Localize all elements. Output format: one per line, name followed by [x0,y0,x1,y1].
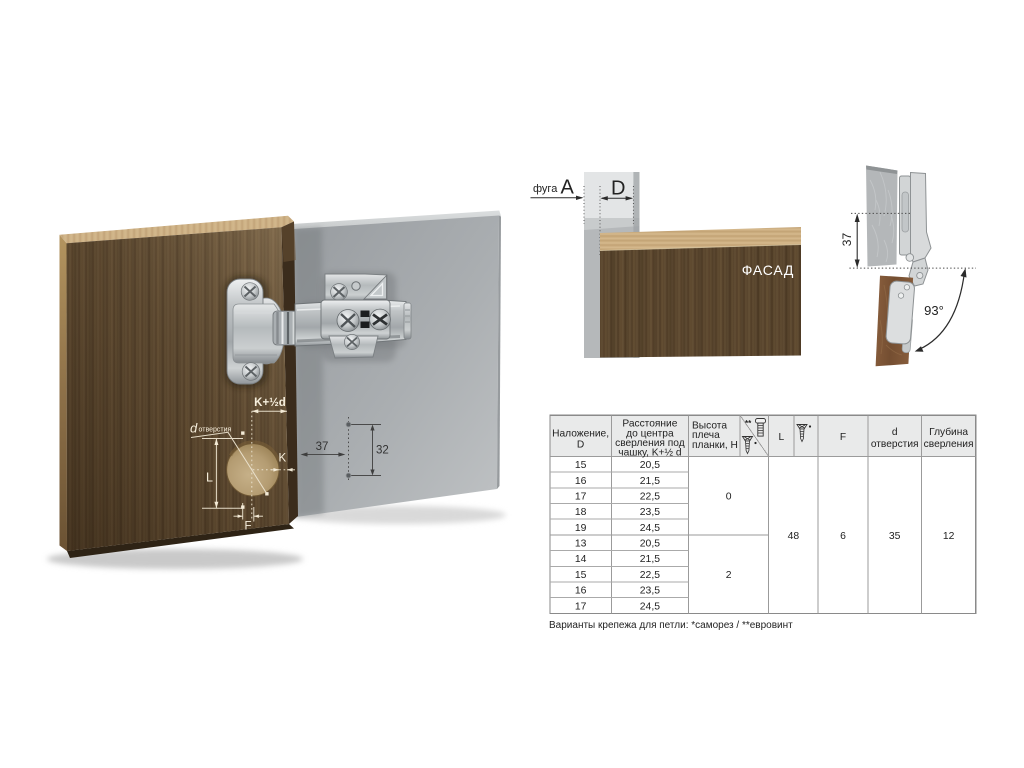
svg-text:37: 37 [316,441,329,453]
svg-text:19: 19 [575,523,587,534]
svg-text:K: K [279,453,287,465]
svg-text:d: d [190,421,198,436]
svg-text:23,5: 23,5 [640,507,660,518]
svg-text:d: d [892,427,898,438]
svg-text:48: 48 [788,531,800,542]
svg-text:ФАСАД: ФАСАД [742,262,794,278]
svg-text:сверления: сверления [924,439,974,450]
svg-text:20,5: 20,5 [640,460,660,471]
svg-text:35: 35 [889,531,901,542]
svg-text:17: 17 [575,601,587,612]
svg-text:24,5: 24,5 [640,523,660,534]
svg-text:Глубина: Глубина [929,426,968,438]
svg-text:13: 13 [575,539,587,550]
svg-text:чашку, K+½ d: чашку, K+½ d [618,448,682,459]
svg-text:15: 15 [575,460,587,471]
svg-text:0: 0 [726,492,732,503]
svg-text:93°: 93° [924,303,944,318]
svg-text:16: 16 [575,476,587,487]
svg-text:24,5: 24,5 [640,601,660,612]
svg-text:D: D [577,440,584,451]
svg-text:2: 2 [726,570,732,581]
svg-text:21,5: 21,5 [640,476,660,487]
svg-text:14: 14 [575,554,587,565]
svg-text:22,5: 22,5 [640,570,660,581]
svg-text:37: 37 [840,233,854,247]
svg-text:20,5: 20,5 [640,539,660,550]
svg-text:F: F [840,432,846,443]
svg-text:23,5: 23,5 [640,586,660,597]
svg-text:18: 18 [575,507,587,518]
svg-text:**: ** [745,419,752,428]
svg-text:K+½d: K+½d [254,397,286,409]
svg-text:F: F [245,521,252,533]
svg-text:15: 15 [575,570,587,581]
svg-text:22,5: 22,5 [640,492,660,503]
svg-text:6: 6 [840,531,846,542]
svg-text:17: 17 [575,492,587,503]
svg-text:L: L [206,471,213,485]
svg-text:отверстия: отверстия [871,439,919,450]
svg-text:отверстия: отверстия [199,427,232,434]
svg-text:A: A [561,177,575,199]
svg-text:12: 12 [943,531,955,542]
svg-text:16: 16 [575,586,587,597]
svg-text:фуга: фуга [533,183,558,195]
svg-text:D: D [611,178,625,200]
svg-text:21,5: 21,5 [640,554,660,565]
svg-text:Наложение,: Наложение, [552,429,609,440]
svg-text:L: L [778,432,784,443]
svg-text:32: 32 [376,445,389,457]
svg-text:Варианты крепежа для петли: *с: Варианты крепежа для петли: *саморез / *… [549,620,793,631]
svg-text:планки, H: планки, H [692,440,738,451]
